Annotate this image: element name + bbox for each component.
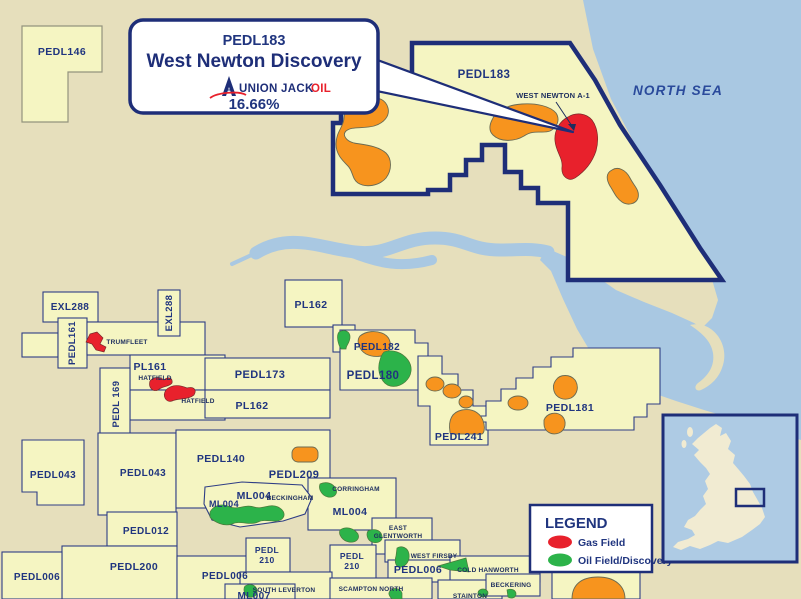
licence-label-exl288-a: EXL288 <box>51 302 90 313</box>
oil-field-beckering <box>507 589 516 598</box>
field-label-scampton-north: SCAMPTON NORTH <box>339 586 404 593</box>
field-label-hatfield-a: HATFIELD <box>138 375 171 382</box>
licence-label-pl162-b: PL162 <box>236 400 269 412</box>
licence-label-pedl006-a: PEDL006 <box>14 572 60 583</box>
licence-label-pedl183: PEDL183 <box>458 69 511 81</box>
orange-field-pedl181-c <box>544 413 565 434</box>
callout-title: West Newton Discovery <box>146 51 361 72</box>
licence-label-pedl140: PEDL140 <box>197 453 245 465</box>
logo-company-text: UNION JACK <box>239 83 314 95</box>
licence-label-pl161: PL161 <box>134 361 167 373</box>
licence-label-pedl182: PEDL182 <box>354 342 400 353</box>
legend: LEGEND Gas Field Oil Field/Discovery <box>530 505 673 572</box>
field-label-hatfield-b: HATFIELD <box>181 398 214 405</box>
callout-interest: 16.66% <box>229 96 280 113</box>
legend-oil-label: Oil Field/Discovery <box>578 555 673 567</box>
licence-label-exl288-b: EXL288 <box>164 295 175 332</box>
licence-label-pedl210-b-line1: PEDL <box>340 551 364 561</box>
licence-label-pedl200: PEDL200 <box>110 561 158 573</box>
orange-field-pedl181-b <box>508 396 528 410</box>
licence-label-pedl043-b: PEDL043 <box>120 468 166 479</box>
orange-field-pedl209 <box>292 447 318 462</box>
licence-label-pedl012: PEDL012 <box>123 526 169 537</box>
field-label-beckingham: BECKINGHAM <box>267 495 314 502</box>
licence-label-pedl241: PEDL241 <box>435 431 483 443</box>
field-label-east-glentworth-line2: GLENTWORTH <box>374 533 423 540</box>
field-label-cold-hanworth: COLD HANWORTH <box>457 567 519 574</box>
field-label-west-firsby: WEST FIRSBY <box>411 553 458 560</box>
uk-inset-map <box>663 415 797 562</box>
orange-field-pedl181-a <box>553 376 577 400</box>
licence-label-pedl173: PEDL173 <box>235 369 286 381</box>
field-label-east-glentworth-line1: EAST <box>389 525 407 532</box>
block-wing <box>22 333 58 357</box>
licence-label-ml004-a: ML004 <box>209 499 239 509</box>
licence-label-pedl210-b-line2: 210 <box>344 561 359 571</box>
field-label-trumfleet: TRUMFLEET <box>106 339 147 346</box>
licence-label-pedl209: PEDL209 <box>269 469 320 481</box>
licence-label-pedl006-b: PEDL006 <box>394 564 442 576</box>
inset-islands-icon <box>687 427 693 437</box>
well-label-west-newton-a1: WEST NEWTON A-1 <box>516 91 590 100</box>
legend-title: LEGEND <box>545 515 608 532</box>
sea-label: NORTH SEA <box>633 83 723 98</box>
licence-label-pedl043-a: PEDL043 <box>30 470 76 481</box>
legend-gas-label: Gas Field <box>578 537 625 549</box>
logo-oil-text: OIL <box>311 83 331 95</box>
licence-label-ml004-c: ML004 <box>333 506 368 518</box>
map-canvas: PEDL146 PEDL183 EXL288 EXL288 PEDL161 PL… <box>0 0 801 599</box>
licence-label-pedl006-c: PEDL006 <box>202 571 248 582</box>
legend-oil-swatch-icon <box>548 554 572 567</box>
orange-field-pedl241-c <box>459 396 473 408</box>
orange-field-pedl241-a <box>426 377 444 391</box>
licence-label-pedl169: PEDL 169 <box>111 381 122 428</box>
legend-gas-swatch-icon <box>548 536 572 549</box>
field-label-south-leverton: SOUTH LEVERTON <box>253 587 316 594</box>
licence-label-pedl181: PEDL181 <box>546 402 594 414</box>
callout-licence: PEDL183 <box>223 33 286 49</box>
licence-label-pedl161: PEDL161 <box>67 321 78 365</box>
orange-field-pedl241-b <box>443 384 461 398</box>
licence-label-pedl210-a-line2: 210 <box>259 555 274 565</box>
licence-label-pedl146: PEDL146 <box>38 46 86 58</box>
licence-map: PEDL146 PEDL183 EXL288 EXL288 PEDL161 PL… <box>0 0 801 599</box>
licence-label-pedl180: PEDL180 <box>347 370 400 382</box>
licence-label-pl162-a: PL162 <box>295 299 328 311</box>
field-label-stainton: STAINTON <box>453 593 487 599</box>
field-label-corringham: CORRINGHAM <box>332 486 380 493</box>
field-label-beckering: BECKERING <box>491 582 532 589</box>
inset-islands2-icon <box>682 440 687 448</box>
licence-label-pedl210-a-line1: PEDL <box>255 545 279 555</box>
